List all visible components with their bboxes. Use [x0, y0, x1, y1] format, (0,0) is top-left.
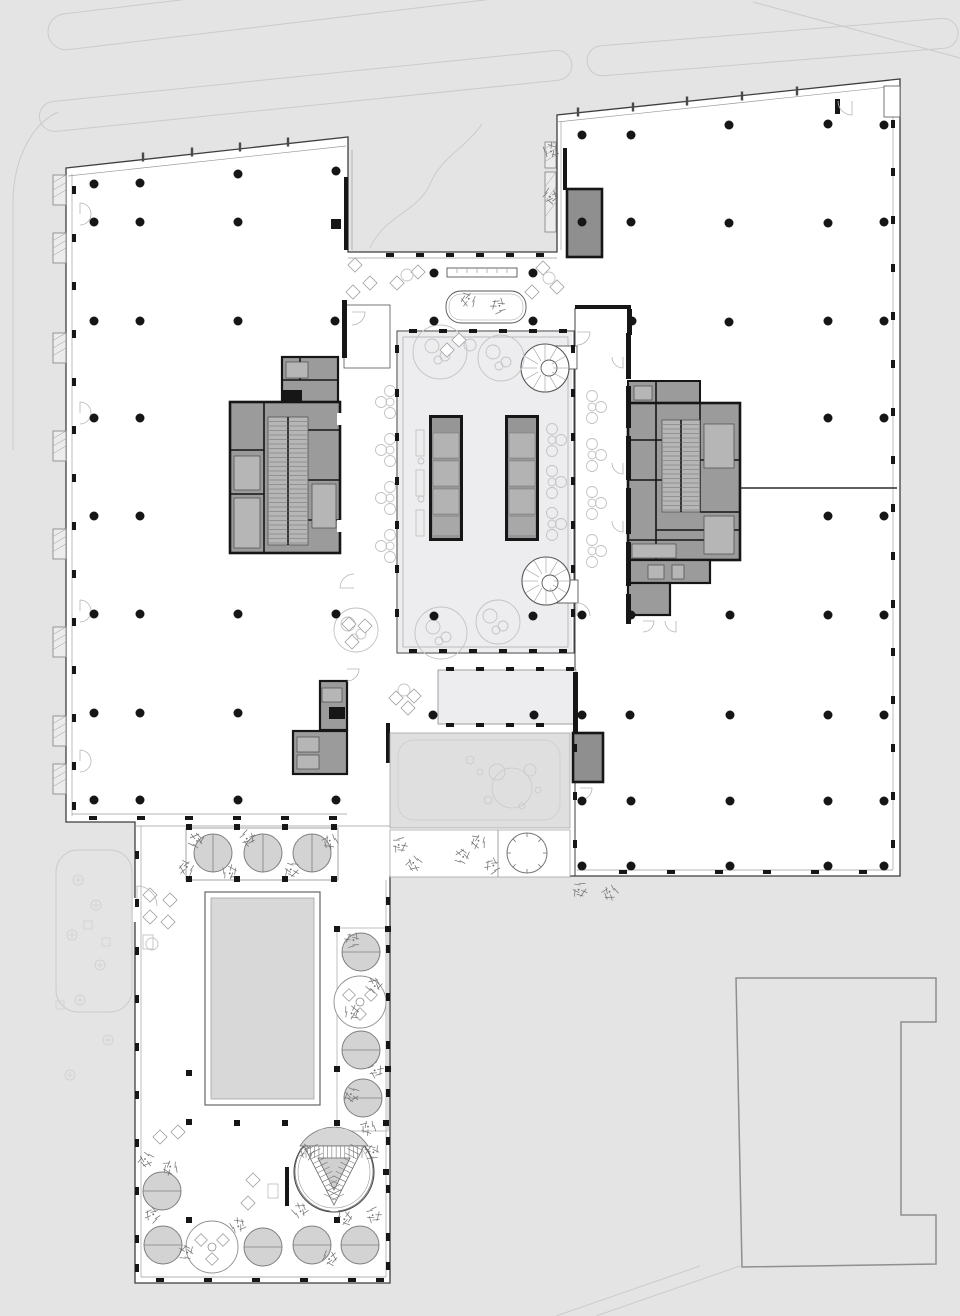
wall-tick: [185, 816, 193, 820]
planter-box: [53, 333, 66, 363]
floor-plan-canvas: [0, 0, 960, 1316]
wall-tick: [386, 1137, 390, 1145]
column-dot: [136, 610, 145, 619]
wall-tick: [891, 264, 895, 272]
wall-tick: [395, 433, 399, 441]
ante-room: [344, 305, 390, 368]
planter-box: [53, 764, 66, 794]
column-dot: [90, 414, 99, 423]
wall-tick: [439, 649, 447, 653]
column-square-small: [334, 926, 340, 932]
column-dot: [234, 709, 243, 718]
wall-tick: [72, 522, 76, 530]
wall-tick: [135, 1187, 139, 1195]
planter-box: [53, 233, 66, 263]
wall-tick: [135, 1264, 139, 1272]
pool-water: [211, 898, 314, 1099]
wall-tick: [891, 840, 895, 848]
wall-tick: [891, 216, 895, 224]
wall-tick: [891, 696, 895, 704]
facade-step: [686, 97, 688, 106]
wall-tick: [135, 899, 139, 907]
column-dot: [90, 180, 99, 189]
planter-box: [53, 431, 66, 461]
banquette-left: [429, 415, 463, 541]
wall-tick: [135, 995, 139, 1003]
column-dot: [880, 611, 889, 620]
wall-tick: [571, 565, 575, 573]
column-dot: [578, 711, 587, 720]
column-dot: [530, 711, 539, 720]
reception-desk: [447, 268, 517, 277]
column-dot: [725, 318, 734, 327]
wall-tick: [72, 570, 76, 578]
gravel-court: [390, 733, 570, 828]
planter-box: [53, 175, 66, 205]
wall-tick: [386, 1262, 390, 1270]
wall-tick: [891, 360, 895, 368]
wall-tick: [72, 474, 76, 482]
wall-tick: [395, 565, 399, 573]
column-square-small: [234, 824, 240, 830]
column-square-small: [234, 876, 240, 882]
vestibule-floor: [438, 670, 576, 724]
column-square-small: [186, 1070, 192, 1076]
column-dot: [627, 131, 636, 140]
column-dot: [628, 317, 637, 326]
wall-tick: [89, 816, 97, 820]
wall-tick: [72, 330, 76, 338]
facade-step: [741, 92, 743, 101]
column-dot: [429, 711, 438, 720]
wall-tick: [506, 667, 514, 671]
column-dot: [880, 317, 889, 326]
wall-tick: [667, 870, 675, 874]
wall-tick: [281, 816, 289, 820]
column-dot: [234, 218, 243, 227]
column-dot: [824, 611, 833, 620]
facade-step: [239, 143, 241, 152]
wall-tick: [476, 253, 484, 257]
banquette-right: [505, 415, 539, 541]
column-dot: [136, 709, 145, 718]
wall-tick: [571, 433, 575, 441]
column-dot: [529, 269, 538, 278]
wall-tick: [571, 477, 575, 485]
column-square-small: [331, 824, 337, 830]
planter-box: [53, 627, 66, 657]
column-square-small: [186, 1119, 192, 1125]
wall-tick: [891, 552, 895, 560]
column-dot: [725, 219, 734, 228]
column-dot: [430, 317, 439, 326]
wall-tick: [536, 723, 544, 727]
corner-vestibule: [884, 86, 900, 117]
column-dot: [430, 269, 439, 278]
wall-tick: [386, 1233, 390, 1241]
wall-tick: [137, 816, 145, 820]
wall-tick: [72, 282, 76, 290]
wall-tick: [891, 648, 895, 656]
wall-tick: [386, 1185, 390, 1193]
wall-tick: [763, 870, 771, 874]
wall-tick: [559, 649, 567, 653]
wall-tick: [329, 816, 337, 820]
column-square-small: [282, 1120, 288, 1126]
wall-tick: [536, 667, 544, 671]
column-square-small: [383, 1120, 389, 1126]
wall-tick: [135, 1043, 139, 1051]
column-dot: [136, 218, 145, 227]
wall-tick: [891, 744, 895, 752]
column-dot: [880, 862, 889, 871]
wall-tick: [233, 816, 241, 820]
column-dot: [578, 797, 587, 806]
wall-tick: [529, 649, 537, 653]
wall-tick: [72, 802, 76, 810]
wall-tick: [72, 666, 76, 674]
column-dot: [824, 512, 833, 521]
column-dot: [234, 796, 243, 805]
column-dot: [529, 612, 538, 621]
wall-tick: [859, 870, 867, 874]
column-dot: [136, 179, 145, 188]
column-dot: [880, 121, 889, 130]
column-dot: [627, 611, 636, 620]
wall-tick: [891, 120, 895, 128]
column-square-small: [385, 926, 391, 932]
facade-step: [142, 153, 144, 162]
column-square-small: [234, 1120, 240, 1126]
wall-tick: [409, 649, 417, 653]
column-dot: [90, 218, 99, 227]
column-square-small: [334, 1066, 340, 1072]
wall-tick: [715, 870, 723, 874]
wall-tick: [571, 609, 575, 617]
wall-tick: [891, 600, 895, 608]
wall-tick: [395, 521, 399, 529]
column-square-small: [282, 824, 288, 830]
facade-step: [287, 138, 289, 147]
wall-tick: [506, 723, 514, 727]
wall-tick: [348, 1278, 356, 1282]
wall-tick: [891, 168, 895, 176]
column-square-small: [186, 876, 192, 882]
wall-tick: [72, 618, 76, 626]
wall-tick: [416, 253, 424, 257]
column-dot: [332, 796, 341, 805]
wall-tick: [72, 426, 76, 434]
facade-step: [191, 148, 193, 157]
column-dot: [880, 711, 889, 720]
column-dot: [578, 862, 587, 871]
wall-tick: [891, 792, 895, 800]
column-dot: [90, 512, 99, 521]
wall-tick: [72, 762, 76, 770]
facade-step: [796, 87, 798, 96]
column-dot: [234, 170, 243, 179]
wall-tick: [566, 667, 574, 671]
column-dot: [90, 796, 99, 805]
column-dot: [578, 611, 587, 620]
column-dot: [880, 797, 889, 806]
wall-tick: [891, 456, 895, 464]
wall-tick: [559, 329, 567, 333]
column-dot: [824, 120, 833, 129]
wall-tick: [571, 389, 575, 397]
wall-tick: [204, 1278, 212, 1282]
column-dot: [824, 797, 833, 806]
wall-tick: [72, 378, 76, 386]
column-dot: [626, 711, 635, 720]
wall-tick: [395, 345, 399, 353]
column-dot: [725, 121, 734, 130]
column-dot: [627, 862, 636, 871]
column-square-small: [331, 876, 337, 882]
column-dot: [880, 218, 889, 227]
wall-tick: [72, 186, 76, 194]
column-dot: [578, 218, 587, 227]
dark-service-room-south: [573, 733, 603, 782]
wall-tick: [571, 345, 575, 353]
wall-tick: [573, 840, 577, 848]
wall-tick: [891, 504, 895, 512]
column-dot: [726, 862, 735, 871]
shrub-dot: [196, 840, 198, 842]
column-dot: [627, 797, 636, 806]
wall-tick: [499, 649, 507, 653]
column-dot: [136, 796, 145, 805]
wall-tick: [386, 993, 390, 1001]
wall-tick: [386, 945, 390, 953]
column-dot: [234, 317, 243, 326]
facade-step: [577, 108, 579, 117]
wall-tick: [536, 253, 544, 257]
column-dot: [136, 317, 145, 326]
column-dot: [578, 131, 587, 140]
column-dot: [824, 414, 833, 423]
wall-tick: [409, 329, 417, 333]
column-dot: [824, 219, 833, 228]
wall-tick: [135, 947, 139, 955]
wall-tick: [72, 714, 76, 722]
column-dot: [726, 797, 735, 806]
entry-planter: [446, 291, 526, 323]
wall-tick: [395, 609, 399, 617]
column-dot: [627, 218, 636, 227]
column-dot: [824, 317, 833, 326]
wall-tick: [476, 723, 484, 727]
wall-tick: [446, 253, 454, 257]
column-square-small: [385, 1066, 391, 1072]
wall-tick: [446, 723, 454, 727]
column-dot: [430, 612, 439, 621]
column-dot: [332, 610, 341, 619]
column-dot: [331, 317, 340, 326]
column-dot: [234, 610, 243, 619]
wall-tick: [573, 744, 577, 752]
column-dot: [824, 862, 833, 871]
wall-tick: [469, 649, 477, 653]
column-dot: [726, 611, 735, 620]
wall-tick: [252, 1278, 260, 1282]
wall-tick: [499, 329, 507, 333]
wall-tick: [891, 408, 895, 416]
wall-tick: [619, 870, 627, 874]
wall-tick: [529, 329, 537, 333]
planter-box: [53, 716, 66, 746]
wall-tick: [395, 477, 399, 485]
floor-plan-drawing: [0, 0, 960, 1316]
wall-tick: [376, 1278, 384, 1282]
column-dot: [90, 610, 99, 619]
wall-tick: [386, 1041, 390, 1049]
column-square-small: [282, 876, 288, 882]
column-dot: [529, 317, 538, 326]
wall-tick: [469, 329, 477, 333]
wall-tick: [506, 253, 514, 257]
wall-tick: [156, 1278, 164, 1282]
wall-tick: [135, 1091, 139, 1099]
wall-tick: [573, 792, 577, 800]
wall-tick: [476, 667, 484, 671]
facade-step: [632, 103, 634, 112]
wall-tick: [573, 696, 577, 704]
wall-tick: [135, 1235, 139, 1243]
wall-tick: [891, 312, 895, 320]
wall-tick: [395, 389, 399, 397]
wall-tick: [811, 870, 819, 874]
wall-tick: [72, 234, 76, 242]
column-dot: [90, 709, 99, 718]
wall-tick: [446, 667, 454, 671]
column-square-small: [383, 1169, 389, 1175]
column-square: [331, 219, 341, 229]
wall-tick: [135, 851, 139, 859]
wall-tick: [135, 1139, 139, 1147]
column-dot: [880, 414, 889, 423]
wall-tick: [571, 521, 575, 529]
wall-tick: [386, 253, 394, 257]
wall-tick: [386, 1089, 390, 1097]
column-square-small: [334, 1217, 340, 1223]
column-dot: [136, 512, 145, 521]
column-dot: [880, 512, 889, 521]
wall-tick: [300, 1278, 308, 1282]
column-dot: [332, 167, 341, 176]
planter-box: [53, 529, 66, 559]
column-square-small: [334, 1120, 340, 1126]
column-dot: [90, 317, 99, 326]
column-dot: [824, 711, 833, 720]
wall-tick: [439, 329, 447, 333]
column-square-small: [186, 824, 192, 830]
court-table: [507, 833, 547, 873]
column-dot: [726, 711, 735, 720]
column-dot: [136, 414, 145, 423]
wall-tick: [386, 897, 390, 905]
column-square-small: [186, 1217, 192, 1223]
